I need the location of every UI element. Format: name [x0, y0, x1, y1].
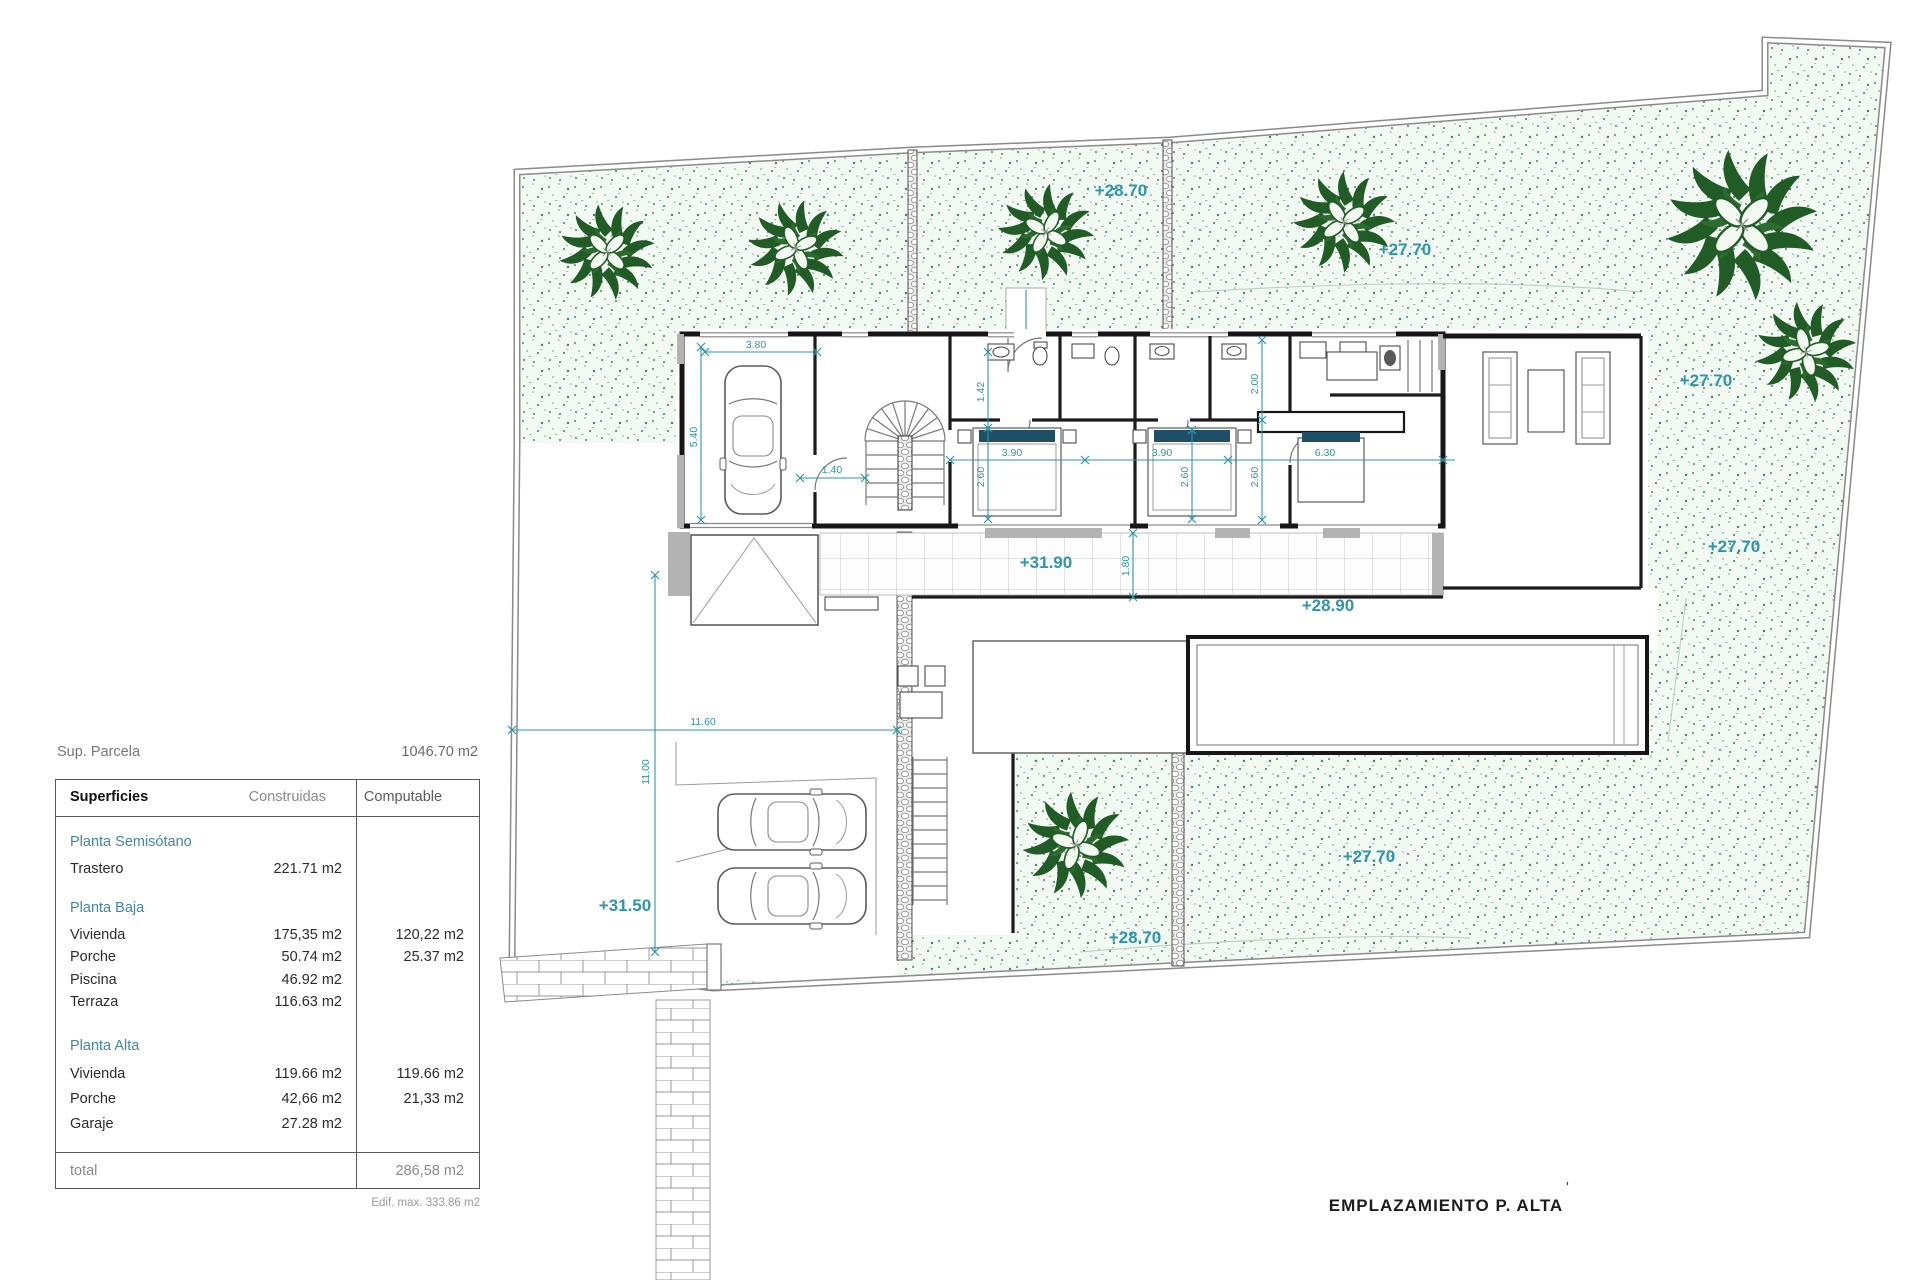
areas-panel: Sup. Parcela 1046.70 m2 Superficies Cons… [55, 744, 480, 1209]
retaining-wall [897, 532, 912, 960]
level-label: +27.70 [1680, 371, 1732, 390]
column-divider [356, 780, 357, 1188]
pool [973, 637, 1647, 753]
dim-label: 1.80 [1120, 556, 1132, 577]
dim-label: 5.40 [688, 427, 700, 448]
parcel-area-row: Sup. Parcela 1046.70 m2 [55, 744, 480, 760]
level-label: +27.70 [1343, 847, 1395, 866]
dim-label: 11.60 [690, 716, 716, 728]
row-construidas: 46.92 m2 [202, 969, 342, 992]
garage-car [720, 366, 786, 514]
step [825, 597, 878, 610]
parcel-area-label: Sup. Parcela [57, 744, 140, 760]
level-label: +31.90 [1020, 553, 1072, 572]
level-label: +27.70 [1379, 240, 1431, 259]
total-value: 286,58 m2 [342, 1163, 464, 1179]
level-label: +27.70 [1708, 537, 1760, 556]
total-label: total [70, 1163, 202, 1179]
row-name: Terraza [70, 991, 202, 1014]
dim-label: 3.90 [1152, 447, 1173, 459]
areas-table: Superficies Construidas Computable Plant… [55, 779, 480, 1189]
dim-label: 11.00 [640, 759, 652, 785]
section-title: Planta Semisótano [70, 832, 465, 852]
row-computable [342, 858, 464, 881]
dim-label: 2.60 [1179, 467, 1191, 488]
row-computable: 21,33 m2 [342, 1087, 464, 1112]
header-computable: Computable [342, 789, 464, 807]
table-row: Vivienda 119.66 m2 119.66 m2 [70, 1062, 465, 1087]
dim-label: 2.60 [975, 467, 987, 488]
row-construidas: 221.71 m2 [202, 858, 342, 881]
row-computable [342, 991, 464, 1014]
row-construidas: 27.28 m2 [202, 1112, 342, 1137]
row-construidas: 119.66 m2 [202, 1062, 342, 1087]
section-title: Planta Baja [70, 898, 465, 918]
table-body: Planta Semisótano Trastero 221.71 m2 Pla… [56, 817, 479, 1137]
dim-label: 1.42 [975, 382, 987, 403]
row-construidas: 116.63 m2 [202, 991, 342, 1014]
row-computable: 120,22 m2 [342, 924, 464, 947]
level-label: +28.90 [1302, 596, 1354, 615]
table-header: Superficies Construidas Computable [56, 780, 479, 817]
entrance-brick-path [500, 944, 721, 1280]
dim-label: 2.00 [1249, 374, 1261, 395]
dim-label: 3.80 [746, 339, 767, 351]
level-label: +31.50 [599, 896, 651, 915]
row-construidas: 42,66 m2 [202, 1087, 342, 1112]
section-title: Planta Alta [70, 1036, 465, 1056]
edif-max-note: Edif. max. 333.86 m2 [55, 1197, 480, 1209]
table-row: Vivienda 175,35 m2 120,22 m2 [70, 924, 465, 947]
total-row: total 286,58 m2 [56, 1152, 479, 1188]
row-computable: 25.37 m2 [342, 946, 464, 969]
header-superficies: Superficies [70, 789, 202, 807]
table-row: Porche 42,66 m2 21,33 m2 [70, 1087, 465, 1112]
dim-label: 2.60 [1249, 467, 1261, 488]
row-name: Porche [70, 946, 202, 969]
dim-label: 3.90 [1002, 447, 1023, 459]
row-computable [342, 1112, 464, 1137]
table-row: Garaje 27.28 m2 [70, 1112, 465, 1137]
parked-car [718, 789, 866, 855]
row-construidas: 175,35 m2 [202, 924, 342, 947]
row-name: Vivienda [70, 1062, 202, 1087]
row-name: Piscina [70, 969, 202, 992]
row-construidas: 50.74 m2 [202, 946, 342, 969]
title-tick: ' [1566, 1179, 1569, 1196]
row-computable [342, 969, 464, 992]
row-name: Porche [70, 1087, 202, 1112]
row-name: Garaje [70, 1112, 202, 1137]
dim-label: 1.40 [822, 464, 843, 476]
table-row: Trastero 221.71 m2 [70, 858, 465, 881]
drawing-title: EMPLAZAMIENTO P. ALTA ' [1329, 1179, 1569, 1215]
level-label: +28.70 [1095, 181, 1147, 200]
parked-car [718, 863, 866, 929]
row-name: Vivienda [70, 924, 202, 947]
header-construidas: Construidas [202, 789, 342, 807]
table-row: Terraza 116.63 m2 [70, 991, 465, 1014]
gate-post [707, 944, 721, 990]
dim-label: 6.30 [1315, 447, 1336, 459]
garage-ramp [691, 535, 818, 625]
porch-table [1528, 370, 1564, 432]
table-row: Piscina 46.92 m2 [70, 969, 465, 992]
parcel-area-value: 1046.70 m2 [401, 744, 478, 760]
row-name: Trastero [70, 858, 202, 881]
level-label: +28.70 [1109, 928, 1161, 947]
table-row: Porche 50.74 m2 25.37 m2 [70, 946, 465, 969]
plan-title: EMPLAZAMIENTO P. ALTA [1329, 1196, 1563, 1215]
row-computable: 119.66 m2 [342, 1062, 464, 1087]
